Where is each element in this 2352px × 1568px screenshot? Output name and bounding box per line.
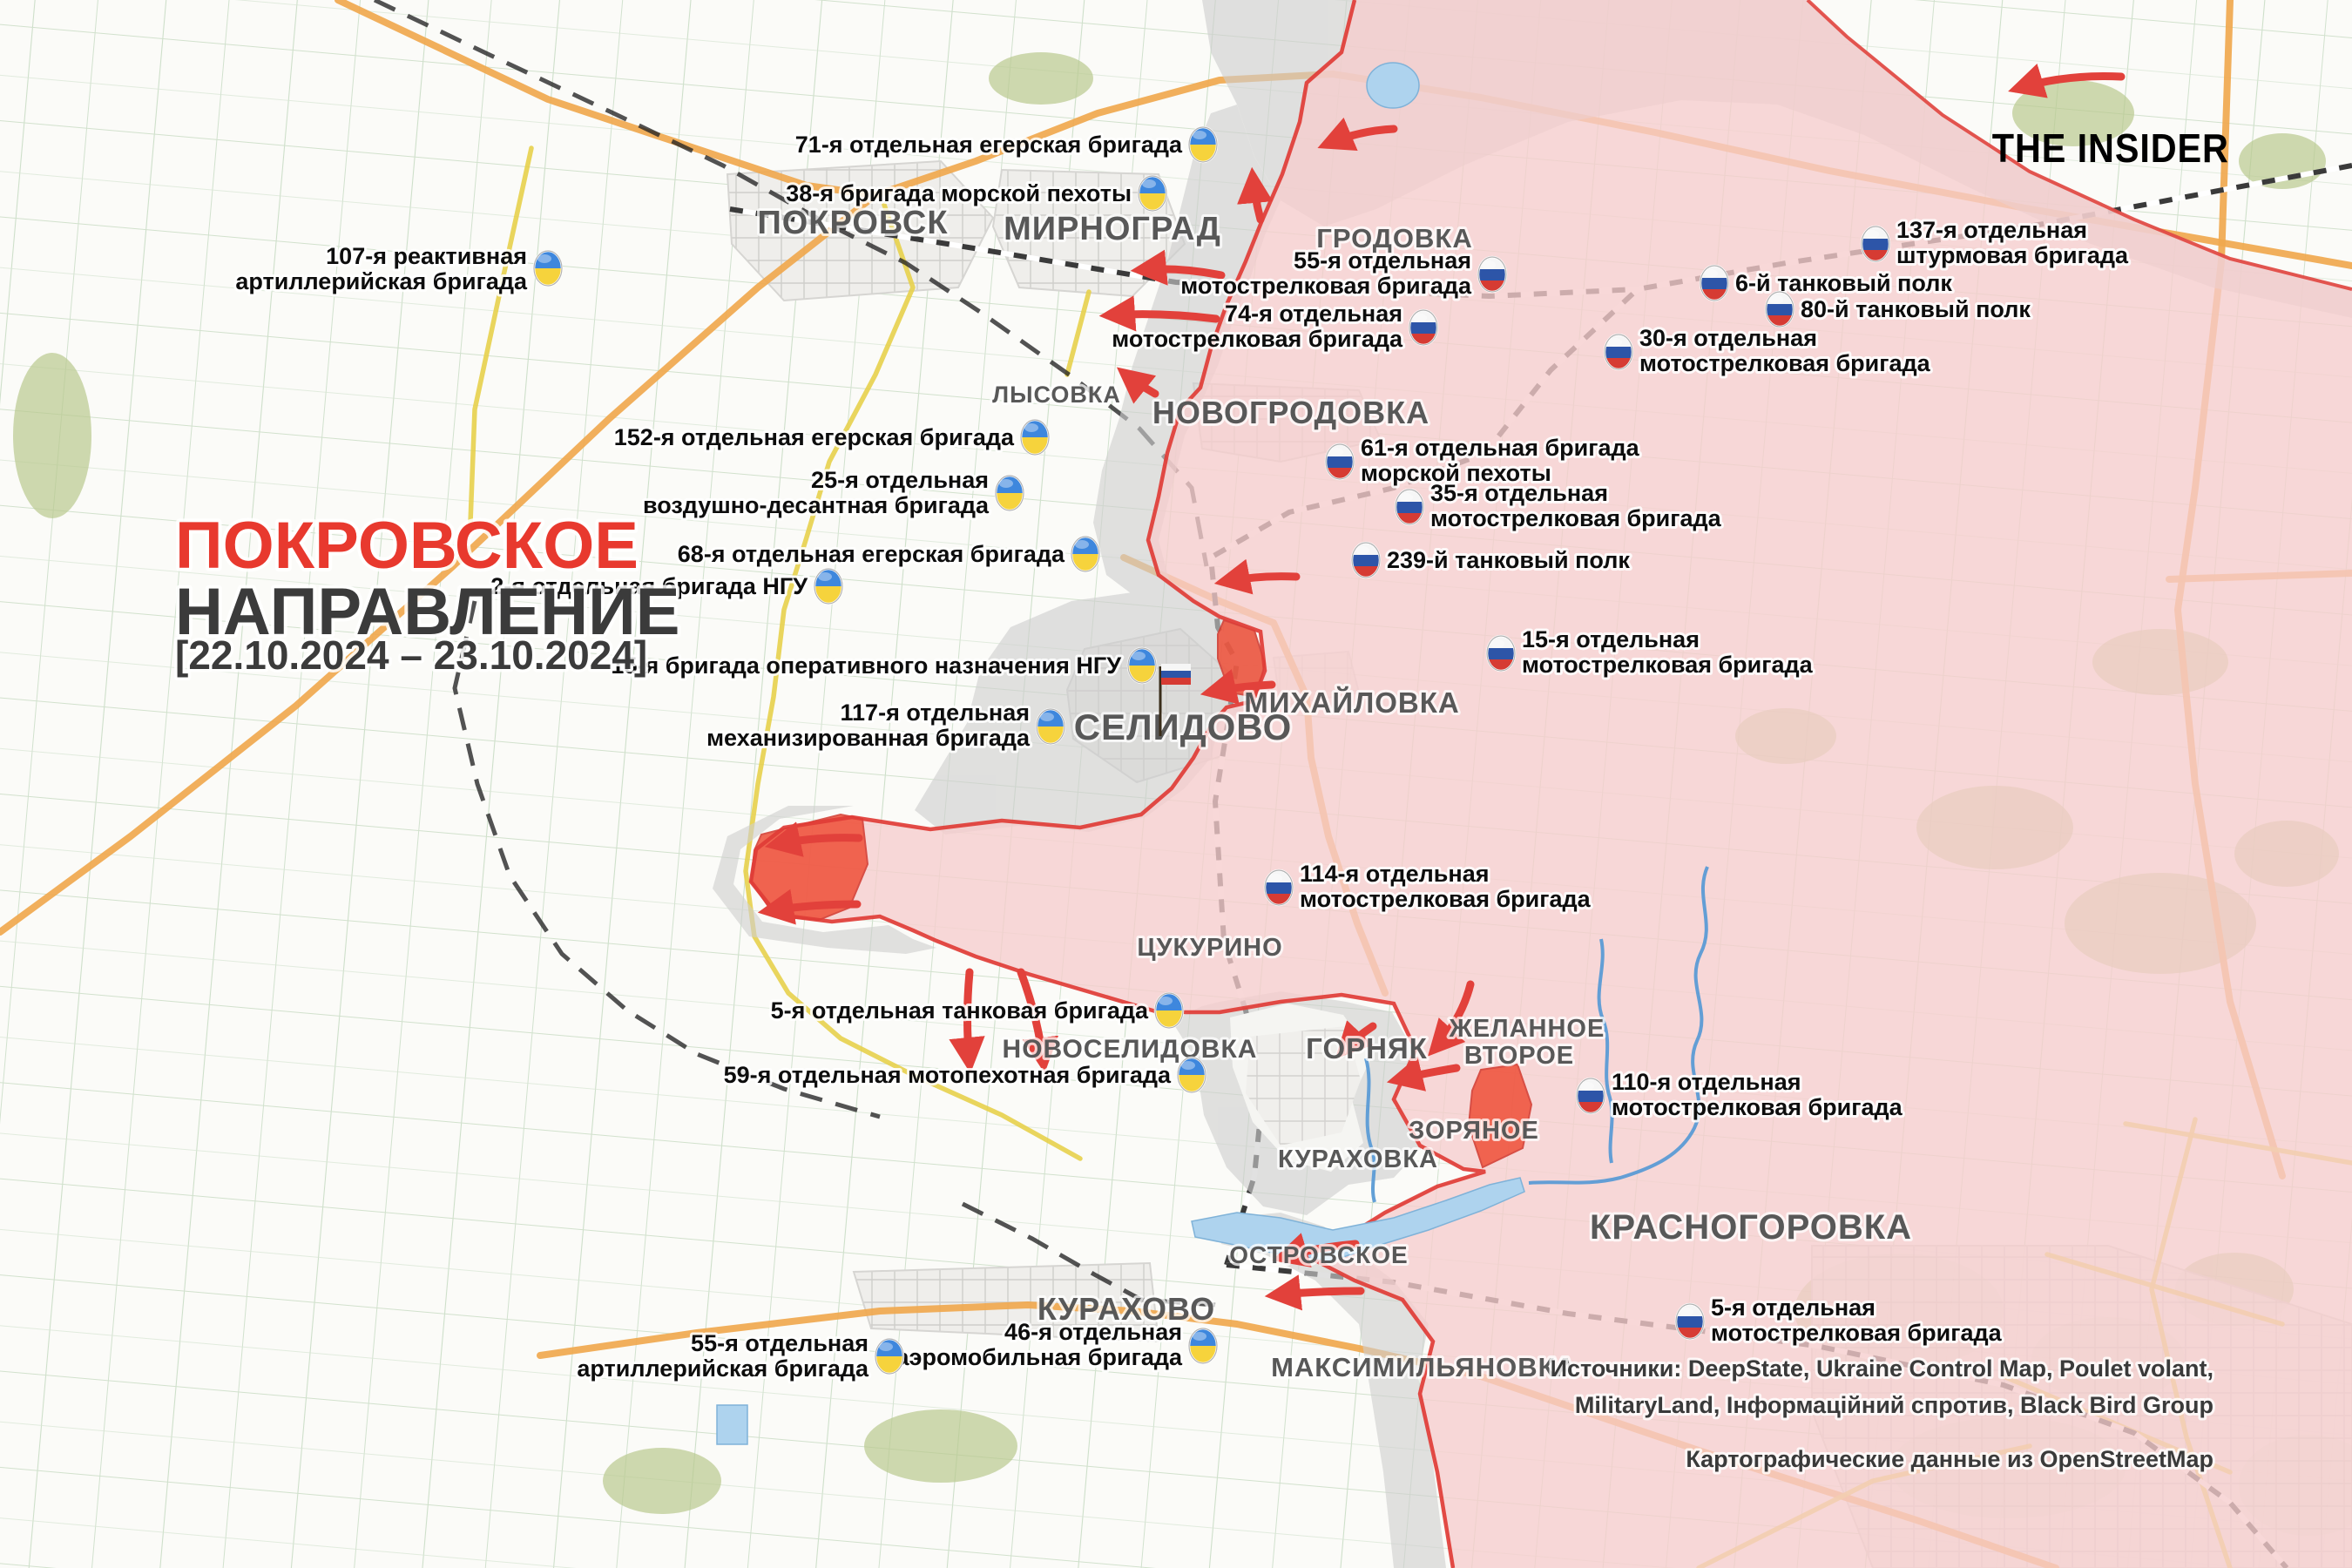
ru-flag-icon: [1766, 292, 1794, 327]
unit-label-46-airmobile: 46-я отдельная: [1004, 1319, 1182, 1345]
ua-flag-icon: [1071, 537, 1099, 571]
unit-label-5-motorrifle-ru: мотострелковая бригада: [1711, 1320, 2003, 1346]
ua-flag-icon: [1128, 648, 1156, 683]
unit-label-110-motorrifle-ru: мотострелковая бригада: [1612, 1094, 1903, 1120]
ua-flag-icon: [996, 476, 1024, 510]
unit-label-35-motorrifle-ru: мотострелковая бригада: [1430, 505, 1722, 531]
city-zoryanoye: ЗОРЯНОЕ: [1409, 1117, 1539, 1145]
unit-label-55-artillery-ua: 55-я отдельная: [691, 1330, 868, 1356]
ru-flag-icon: [1396, 490, 1423, 524]
unit-label-137-assault-ru: штурмовая бригада: [1896, 242, 2129, 268]
unit-label-74-motorrifle-ru: 74-я отдельная: [1225, 301, 1402, 327]
pond-small: [717, 1405, 747, 1444]
sources-line3: Картографические данные из OpenStreetMap: [1686, 1446, 2213, 1472]
city-tsukurino: ЦУКУРИНО: [1137, 934, 1282, 962]
unit-label-152-jager: 152-я отдельная егерская бригада: [614, 424, 1015, 450]
unit-label-59-motorized: 59-я отдельная мотопехотная бригада: [724, 1062, 1172, 1088]
ua-flag-icon: [875, 1339, 903, 1374]
unit-label-15-motorrifle-ru: мотострелковая бригада: [1522, 652, 1814, 678]
sources-line2: MilitaryLand, Інформаційний спротив, Bla…: [1575, 1392, 2213, 1418]
unit-label-5-tank-ua: 5-я отдельная танковая бригада: [771, 997, 1149, 1024]
unit-label-55-artillery-ua: артиллерийская бригада: [577, 1355, 869, 1382]
attack-arrow: [1274, 1291, 1361, 1295]
unit-label-80-tank-ru: 80-й танковый полк: [1801, 296, 2031, 322]
the-insider-logo: THE INSIDER: [1992, 126, 2229, 172]
grodovka-pond: [1367, 63, 1419, 108]
unit-label-6-tank-ru: 6-й танковый полк: [1735, 270, 1952, 296]
ru-flag-icon: [1352, 543, 1380, 578]
unit-label-107-artillery: артиллерийская бригада: [235, 268, 528, 294]
ua-flag-icon: [1189, 1328, 1217, 1363]
attack-arrow: [1108, 314, 1216, 319]
unit-label-114-motorrifle-ru: мотострелковая бригада: [1300, 886, 1592, 912]
unit-label-15-ngu: 15-я бригада оперативного назначения НГУ: [611, 652, 1122, 679]
unit-label-68-jager: 68-я отдельная егерская бригада: [678, 541, 1065, 567]
city-krasnogorovka: КРАСНОГОРОВКА: [1590, 1208, 1912, 1247]
city-pokrovsk: ПОКРОВСК: [757, 205, 948, 241]
ru-flag-icon: [1862, 226, 1889, 261]
city-novogrodovka: НОВОГРОДОВКА: [1152, 395, 1429, 430]
sources-line1: Источники: DeepState, Ukraine Control Ma…: [1551, 1355, 2213, 1382]
city-lysovka: ЛЫСОВКА: [992, 382, 1121, 408]
ua-flag-icon: [814, 569, 842, 604]
unit-label-55-motorrifle-ru: мотострелковая бригада: [1180, 273, 1472, 299]
ru-flag-icon: [1409, 310, 1437, 345]
unit-label-117-mech: 117-я отдельная: [841, 700, 1030, 726]
unit-label-25-airborne: 25-я отдельная: [811, 467, 989, 493]
unit-label-25-airborne: воздушно-десантная бригада: [643, 492, 990, 518]
ua-flag-icon: [1139, 176, 1166, 211]
ua-flag-icon: [1155, 993, 1183, 1028]
map-title-date-range: [22.10.2024 – 23.10.2024]: [175, 632, 647, 678]
ua-flag-icon: [1189, 127, 1217, 162]
city-zhelannoye-line1: ЖЕЛАННОЕ: [1449, 1015, 1605, 1043]
ru-flag-icon: [1326, 444, 1354, 479]
unit-label-38-marine: 38-я бригада морской пехоты: [786, 180, 1132, 206]
unit-label-30-motorrifle-ru: 30-я отдельная: [1639, 325, 1817, 351]
city-mirnograd: МИРНОГРАД: [1004, 211, 1221, 247]
ua-flag-icon: [1021, 420, 1049, 455]
city-zhelannoye-line2: ВТОРОЕ: [1464, 1042, 1574, 1070]
unit-label-74-motorrifle-ru: мотострелковая бригада: [1112, 326, 1403, 352]
unit-label-35-motorrifle-ru: 35-я отдельная: [1430, 480, 1608, 506]
unit-label-46-airmobile: аэромобильная бригада: [896, 1344, 1183, 1370]
unit-label-239-tank-ru: 239-й танковый полк: [1387, 547, 1630, 573]
ru-flag-icon: [1265, 870, 1293, 905]
city-maksimilyanovka: МАКСИМИЛЬЯНОВКА: [1271, 1352, 1576, 1382]
unit-label-117-mech: механизированная бригада: [706, 725, 1031, 751]
ru-flag-icon: [1487, 636, 1515, 671]
title-block: ПОКРОВСКОЕ НАПРАВЛЕНИЕ [22.10.2024 – 23.…: [175, 509, 680, 678]
city-kurakhovka: КУРАХОВКА: [1278, 1146, 1438, 1173]
unit-label-5-motorrifle-ru: 5-я отдельная: [1711, 1294, 1876, 1321]
unit-label-137-assault-ru: 137-я отдельная: [1896, 217, 2087, 243]
unit-label-107-artillery: 107-я реактивная: [326, 243, 527, 269]
ru-flag-icon: [1478, 257, 1506, 292]
ru-flag-icon: [1577, 1078, 1605, 1113]
unit-label-114-motorrifle-ru: 114-я отдельная: [1300, 861, 1489, 887]
ua-flag-icon: [1178, 1058, 1206, 1092]
unit-label-110-motorrifle-ru: 110-я отдельная: [1612, 1069, 1801, 1095]
city-novoselidovka: НОВОСЕЛИДОВКА: [1003, 1035, 1258, 1064]
unit-label-55-motorrifle-ru: 55-я отдельная: [1294, 247, 1471, 274]
ru-flag-icon: [1700, 266, 1728, 301]
unit-label-15-motorrifle-ru: 15-я отдельная: [1522, 626, 1700, 652]
situation-map: ПОКРОВСК МИРНОГРАД ГРОДОВКА ЛЫСОВКА НОВО…: [0, 0, 2352, 1568]
unit-label-71-jager: 71-я отдельная егерская бригада: [795, 132, 1183, 158]
ua-flag-icon: [534, 251, 562, 286]
unit-label-30-motorrifle-ru: мотострелковая бригада: [1639, 350, 1931, 376]
city-selidovo: СЕЛИДОВО: [1074, 706, 1293, 747]
city-gornyak: ГОРНЯК: [1306, 1032, 1428, 1064]
ua-flag-icon: [1037, 709, 1064, 744]
ru-flag-icon: [1676, 1304, 1704, 1339]
map-title-line1: ПОКРОВСКОЕ: [175, 509, 639, 583]
map-canvas: ПОКРОВСК МИРНОГРАД ГРОДОВКА ЛЫСОВКА НОВО…: [0, 0, 2352, 1568]
ru-flag-icon: [1605, 335, 1632, 369]
city-ostrovskoye: ОСТРОВСКОЕ: [1229, 1241, 1408, 1268]
unit-label-61-marine-ru: 61-я отдельная бригада: [1361, 435, 1640, 461]
